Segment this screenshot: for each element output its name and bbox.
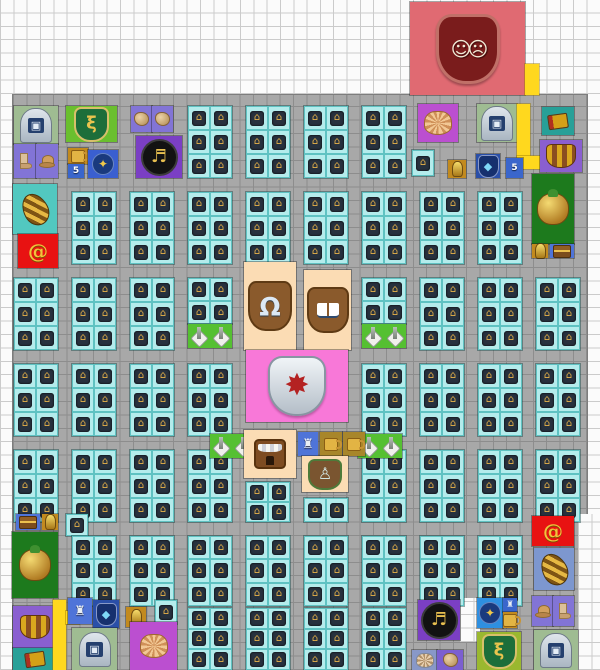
shrine-building[interactable]: ⌂ xyxy=(72,278,94,302)
shrine-building[interactable]: ⌂ xyxy=(268,502,290,522)
shrine-building[interactable]: ⌂ xyxy=(478,216,500,240)
shrine-building[interactable]: ⌂ xyxy=(442,412,464,436)
shrine-building[interactable]: ⌂ xyxy=(188,412,210,436)
shrine-building[interactable]: ⌂ xyxy=(478,450,500,474)
shrine-building[interactable]: ⌂ xyxy=(326,629,348,650)
portal-emblem-tile-br[interactable]: ▣ xyxy=(534,630,578,670)
shrine-building[interactable]: ⌂ xyxy=(268,608,290,629)
spiral-tile-tl[interactable]: @ xyxy=(18,234,58,268)
shrine-building[interactable]: ⌂ xyxy=(36,474,58,498)
shrine-building[interactable]: ⌂ xyxy=(152,364,174,388)
shrine-building[interactable]: ⌂ xyxy=(268,106,290,130)
shrine-building[interactable]: ⌂ xyxy=(152,278,174,302)
shrine-building[interactable]: ⌂ xyxy=(152,412,174,436)
shrine-building[interactable]: ⌂ xyxy=(246,240,268,264)
shrine-building[interactable]: ⌂ xyxy=(72,474,94,498)
obelisk-tile-c6[interactable] xyxy=(362,324,406,348)
shrine-building[interactable]: ⌂ xyxy=(326,192,348,216)
shell-tile-bl[interactable] xyxy=(130,622,177,670)
shrine-building[interactable]: ⌂ xyxy=(362,583,384,606)
shrine-building[interactable]: ⌂ xyxy=(246,154,268,178)
shrine-building[interactable]: ⌂ xyxy=(384,536,406,559)
shrine-building[interactable]: ⌂ xyxy=(384,474,406,498)
shrine-building[interactable]: ⌂ xyxy=(500,240,522,264)
chest-tile-tr[interactable] xyxy=(550,244,574,258)
shrine-building[interactable]: ⌂ xyxy=(362,649,384,670)
shrine-building[interactable]: ⌂ xyxy=(72,216,94,240)
shrine-building[interactable]: ⌂ xyxy=(188,130,210,154)
shrine-building[interactable]: ⌂ xyxy=(304,240,326,264)
portal-emblem-tile-tr[interactable]: ▣ xyxy=(477,104,517,142)
shrine-building[interactable]: ⌂ xyxy=(72,450,94,474)
shrine-building[interactable]: ⌂ xyxy=(384,192,406,216)
shrine-building[interactable]: ⌂ xyxy=(362,154,384,178)
shrine-building[interactable]: ⌂ xyxy=(362,559,384,582)
shrine-building[interactable]: ⌂ xyxy=(326,498,348,522)
shrine-building[interactable]: ⌂ xyxy=(130,278,152,302)
shrine-building[interactable]: ⌂ xyxy=(384,364,406,388)
shrine-building[interactable]: ⌂ xyxy=(304,130,326,154)
yellow-road-top[interactable] xyxy=(525,64,539,95)
shrine-building[interactable]: ⌂ xyxy=(210,498,232,522)
shrine-building[interactable]: ⌂ xyxy=(558,364,580,388)
shrine-building[interactable]: ⌂ xyxy=(442,240,464,264)
shrine-building[interactable]: ⌂ xyxy=(420,559,442,582)
shrine-building[interactable]: ⌂ xyxy=(442,474,464,498)
shrine-building[interactable]: ⌂ xyxy=(268,130,290,154)
shrine-building[interactable]: ⌂ xyxy=(268,216,290,240)
urn-tile-tr[interactable] xyxy=(532,174,574,244)
mug-tile-center-a[interactable] xyxy=(320,432,342,456)
shrine-building[interactable]: ⌂ xyxy=(188,278,210,301)
shrine-building[interactable]: ⌂ xyxy=(152,474,174,498)
shrine-building[interactable]: ⌂ xyxy=(94,240,116,264)
shrine-building[interactable]: ⌂ xyxy=(210,106,232,130)
shrine-building[interactable]: ⌂ xyxy=(500,536,522,559)
shrine-building[interactable]: ⌂ xyxy=(130,583,152,606)
shrine-building[interactable]: ⌂ xyxy=(478,302,500,326)
shrine-building[interactable]: ⌂ xyxy=(14,412,36,436)
guild-plaza[interactable]: ✸ xyxy=(246,350,348,422)
shrine-building[interactable]: ⌂ xyxy=(384,629,406,650)
shrine-building[interactable]: ⌂ xyxy=(188,498,210,522)
shrine-building[interactable]: ⌂ xyxy=(304,559,326,582)
shrine-building[interactable]: ⌂ xyxy=(188,536,210,559)
shrine-building[interactable]: ⌂ xyxy=(478,388,500,412)
shrine-building[interactable]: ⌂ xyxy=(268,583,290,606)
shrine-building[interactable]: ⌂ xyxy=(384,608,406,629)
statue-tile-bl[interactable]: ♜ xyxy=(68,598,92,624)
shrine-building[interactable]: ⌂ xyxy=(420,302,442,326)
shrine-building[interactable]: ⌂ xyxy=(14,388,36,412)
mug-tile-center-b[interactable] xyxy=(343,432,365,456)
shrine-building[interactable]: ⌂ xyxy=(558,388,580,412)
shrine-building[interactable]: ⌂ xyxy=(442,498,464,522)
shrine-building[interactable]: ⌂ xyxy=(500,326,522,350)
shell-tile-tr[interactable] xyxy=(418,104,458,142)
mug-tile-br[interactable] xyxy=(503,612,517,628)
shrine-building[interactable]: ⌂ xyxy=(558,326,580,350)
shrine-building[interactable]: ⌂ xyxy=(188,629,210,650)
shrine-building[interactable]: ⌂ xyxy=(326,649,348,670)
spiral-tile-br[interactable]: @ xyxy=(532,516,574,546)
shrine-building[interactable]: ⌂ xyxy=(246,502,268,522)
shrine-building[interactable]: ⌂ xyxy=(362,608,384,629)
shrine-building[interactable]: ⌂ xyxy=(362,388,384,412)
shrine-building[interactable]: ⌂ xyxy=(268,154,290,178)
shrine-building[interactable]: ⌂ xyxy=(536,364,558,388)
shrine-building[interactable]: ⌂ xyxy=(268,536,290,559)
trophy-plaza[interactable]: ♙ xyxy=(302,456,348,492)
shrine-building[interactable]: ⌂ xyxy=(210,364,232,388)
shrine-building[interactable]: ⌂ xyxy=(210,301,232,324)
shrine-building[interactable]: ⌂ xyxy=(130,216,152,240)
shrine-building[interactable]: ⌂ xyxy=(304,629,326,650)
basket-tile-bl[interactable] xyxy=(13,606,57,648)
shrine-building[interactable]: ⌂ xyxy=(412,150,434,176)
shrine-building[interactable]: ⌂ xyxy=(210,649,232,670)
lamp-tile-bl-a[interactable] xyxy=(42,514,58,530)
shrine-building[interactable]: ⌂ xyxy=(210,240,232,264)
shrine-building[interactable]: ⌂ xyxy=(94,302,116,326)
shrine-building[interactable]: ⌂ xyxy=(246,559,268,582)
shrine-building[interactable]: ⌂ xyxy=(246,649,268,670)
shrine-building[interactable]: ⌂ xyxy=(246,130,268,154)
shrine-building[interactable]: ⌂ xyxy=(384,130,406,154)
shrine-building[interactable]: ⌂ xyxy=(152,450,174,474)
shrine-building[interactable]: ⌂ xyxy=(72,412,94,436)
shrine-building[interactable]: ⌂ xyxy=(442,536,464,559)
shrine-building[interactable]: ⌂ xyxy=(268,649,290,670)
number-tile-tr[interactable]: 5 xyxy=(506,158,523,178)
shrine-building[interactable]: ⌂ xyxy=(442,216,464,240)
shrine-building[interactable]: ⌂ xyxy=(326,216,348,240)
shrine-building[interactable]: ⌂ xyxy=(536,474,558,498)
shrine-building[interactable]: ⌂ xyxy=(36,364,58,388)
shrine-building[interactable]: ⌂ xyxy=(210,583,232,606)
shrine-building[interactable]: ⌂ xyxy=(326,240,348,264)
shrine-building[interactable]: ⌂ xyxy=(384,412,406,436)
portal-emblem-tile-tl[interactable]: ▣ xyxy=(14,106,58,144)
shrine-building[interactable]: ⌂ xyxy=(420,412,442,436)
boot-tile-br[interactable] xyxy=(553,596,574,626)
shrine-building[interactable]: ⌂ xyxy=(558,450,580,474)
shrine-building[interactable]: ⌂ xyxy=(420,388,442,412)
shrine-building[interactable]: ⌂ xyxy=(420,474,442,498)
shrine-building[interactable]: ⌂ xyxy=(500,216,522,240)
glove-tile-b[interactable] xyxy=(152,106,173,132)
shrine-building[interactable]: ⌂ xyxy=(478,192,500,216)
shrine-building[interactable]: ⌂ xyxy=(384,154,406,178)
shrine-building[interactable]: ⌂ xyxy=(188,154,210,178)
shrine-building[interactable]: ⌂ xyxy=(94,412,116,436)
shrine-building[interactable]: ⌂ xyxy=(362,498,384,522)
shrine-building[interactable]: ⌂ xyxy=(478,278,500,302)
shrine-building[interactable]: ⌂ xyxy=(36,278,58,302)
shrine-building[interactable]: ⌂ xyxy=(130,192,152,216)
music-clef-tile-tl[interactable]: ♬ xyxy=(136,136,182,178)
basket-tile-tr[interactable] xyxy=(540,140,582,172)
shrine-building[interactable]: ⌂ xyxy=(420,498,442,522)
shrine-building[interactable]: ⌂ xyxy=(384,388,406,412)
shrine-building[interactable]: ⌂ xyxy=(442,326,464,350)
shrine-building[interactable]: ⌂ xyxy=(500,388,522,412)
shrine-building[interactable]: ⌂ xyxy=(130,326,152,350)
shrine-building[interactable]: ⌂ xyxy=(36,326,58,350)
shrine-building[interactable]: ⌂ xyxy=(246,216,268,240)
shrine-building[interactable]: ⌂ xyxy=(210,278,232,301)
shrine-building[interactable]: ⌂ xyxy=(420,216,442,240)
shrine-building[interactable]: ⌂ xyxy=(362,216,384,240)
shrine-building[interactable]: ⌂ xyxy=(94,559,116,582)
shrine-building[interactable]: ⌂ xyxy=(362,240,384,264)
shrine-building[interactable]: ⌂ xyxy=(188,388,210,412)
shrine-building[interactable]: ⌂ xyxy=(478,474,500,498)
shrine-building[interactable]: ⌂ xyxy=(442,450,464,474)
shrine-building[interactable]: ⌂ xyxy=(188,301,210,324)
shrine-building[interactable]: ⌂ xyxy=(362,629,384,650)
shrine-building[interactable]: ⌂ xyxy=(268,482,290,502)
shrine-building[interactable]: ⌂ xyxy=(94,364,116,388)
shrine-building[interactable]: ⌂ xyxy=(14,278,36,302)
shrine-building[interactable]: ⌂ xyxy=(384,240,406,264)
shrine-building[interactable]: ⌂ xyxy=(246,192,268,216)
shrine-building[interactable]: ⌂ xyxy=(152,216,174,240)
shrine-building[interactable]: ⌂ xyxy=(500,450,522,474)
shrine-building[interactable]: ⌂ xyxy=(130,240,152,264)
shrine-building[interactable]: ⌂ xyxy=(152,240,174,264)
droplet-crest-tile-tr[interactable]: ◆ xyxy=(476,154,500,178)
shrine-building[interactable]: ⌂ xyxy=(188,216,210,240)
shrine-building[interactable]: ⌂ xyxy=(210,130,232,154)
shrine-building[interactable]: ⌂ xyxy=(210,608,232,629)
shrine-building[interactable]: ⌂ xyxy=(478,412,500,436)
shrine-building[interactable]: ⌂ xyxy=(152,192,174,216)
lamp-tile-tr-b[interactable] xyxy=(532,244,548,258)
shrine-building[interactable]: ⌂ xyxy=(94,498,116,522)
shrine-building[interactable]: ⌂ xyxy=(210,216,232,240)
shrine-building[interactable]: ⌂ xyxy=(304,608,326,629)
shrine-building[interactable]: ⌂ xyxy=(36,450,58,474)
mug-tile-tl[interactable] xyxy=(68,148,88,164)
shrine-building[interactable]: ⌂ xyxy=(500,559,522,582)
shrine-building[interactable]: ⌂ xyxy=(130,302,152,326)
shrine-building[interactable]: ⌂ xyxy=(558,474,580,498)
glove-tile-a[interactable] xyxy=(131,106,152,132)
shrine-building[interactable]: ⌂ xyxy=(362,412,384,436)
book-plaza[interactable] xyxy=(304,270,351,350)
shrine-building[interactable]: ⌂ xyxy=(326,583,348,606)
shrine-building[interactable]: ⌂ xyxy=(130,388,152,412)
chest-tile-bl[interactable] xyxy=(16,514,40,530)
shrine-building[interactable]: ⌂ xyxy=(500,474,522,498)
shrine-building[interactable]: ⌂ xyxy=(246,536,268,559)
shrine-building[interactable]: ⌂ xyxy=(478,326,500,350)
banner-tile-br[interactable]: ♜ xyxy=(503,598,517,612)
portal-emblem-tile-bl[interactable]: ▣ xyxy=(72,628,117,670)
shrine-building[interactable]: ⌂ xyxy=(536,412,558,436)
shrine-building[interactable]: ⌂ xyxy=(268,192,290,216)
shrine-building[interactable]: ⌂ xyxy=(246,583,268,606)
shrine-building[interactable]: ⌂ xyxy=(210,154,232,178)
shrine-building[interactable]: ⌂ xyxy=(72,302,94,326)
yellow-road-bl-v[interactable] xyxy=(53,600,66,670)
shrine-building[interactable]: ⌂ xyxy=(72,364,94,388)
shrine-building[interactable]: ⌂ xyxy=(536,450,558,474)
shrine-building[interactable]: ⌂ xyxy=(246,608,268,629)
shrine-building[interactable]: ⌂ xyxy=(442,559,464,582)
shrine-building[interactable]: ⌂ xyxy=(188,192,210,216)
shrine-building[interactable]: ⌂ xyxy=(500,278,522,302)
yellow-road-tr-v[interactable] xyxy=(517,104,530,156)
theater-masks-plaza[interactable]: ☺☹ xyxy=(410,2,525,95)
shrine-building[interactable]: ⌂ xyxy=(152,302,174,326)
shrine-building[interactable]: ⌂ xyxy=(500,192,522,216)
shell-tile-br-small[interactable] xyxy=(412,650,437,670)
gem-shield-tile-tl[interactable]: ✦ xyxy=(88,150,118,178)
shrine-building[interactable]: ⌂ xyxy=(326,106,348,130)
shrine-building[interactable]: ⌂ xyxy=(188,240,210,264)
star-shield-tile-br[interactable]: ✦ xyxy=(477,598,503,628)
shrine-building[interactable]: ⌂ xyxy=(14,474,36,498)
shrine-building[interactable]: ⌂ xyxy=(94,536,116,559)
bell-plaza[interactable]: Ω xyxy=(244,262,296,350)
shrine-building[interactable]: ⌂ xyxy=(246,106,268,130)
shrine-building[interactable]: ⌂ xyxy=(500,412,522,436)
shrine-building[interactable]: ⌂ xyxy=(14,450,36,474)
hat-tile-br[interactable] xyxy=(532,596,553,626)
shrine-building[interactable]: ⌂ xyxy=(72,559,94,582)
shrine-building[interactable]: ⌂ xyxy=(188,649,210,670)
shrine-building[interactable]: ⌂ xyxy=(384,301,406,324)
statue-tile-center[interactable]: ♜ xyxy=(298,432,318,456)
shrine-building[interactable]: ⌂ xyxy=(420,364,442,388)
shrine-building[interactable]: ⌂ xyxy=(420,192,442,216)
shrine-building[interactable]: ⌂ xyxy=(442,364,464,388)
obelisk-tile-c3[interactable] xyxy=(188,324,232,348)
shrine-building[interactable]: ⌂ xyxy=(268,559,290,582)
snake-crest-tile-tl[interactable]: ξ xyxy=(66,106,117,142)
conch-tile-br[interactable] xyxy=(534,548,574,590)
shrine-building[interactable]: ⌂ xyxy=(94,192,116,216)
storefront-plaza[interactable] xyxy=(244,430,296,478)
shrine-building[interactable]: ⌂ xyxy=(304,649,326,670)
shrine-building[interactable]: ⌂ xyxy=(558,278,580,302)
shrine-building[interactable]: ⌂ xyxy=(500,302,522,326)
shrine-building[interactable]: ⌂ xyxy=(66,514,88,536)
shrine-building[interactable]: ⌂ xyxy=(152,559,174,582)
shrine-building[interactable]: ⌂ xyxy=(14,302,36,326)
shrine-building[interactable]: ⌂ xyxy=(442,278,464,302)
shrine-building[interactable]: ⌂ xyxy=(72,536,94,559)
shrine-building[interactable]: ⌂ xyxy=(188,474,210,498)
shrine-building[interactable]: ⌂ xyxy=(14,364,36,388)
shrine-building[interactable]: ⌂ xyxy=(326,536,348,559)
shrine-building[interactable]: ⌂ xyxy=(210,474,232,498)
shrine-building[interactable]: ⌂ xyxy=(188,583,210,606)
shrine-building[interactable]: ⌂ xyxy=(442,388,464,412)
shrine-building[interactable]: ⌂ xyxy=(362,278,384,301)
shrine-building[interactable]: ⌂ xyxy=(130,559,152,582)
shrine-building[interactable]: ⌂ xyxy=(384,649,406,670)
shrine-building[interactable]: ⌂ xyxy=(384,583,406,606)
shrine-building[interactable]: ⌂ xyxy=(442,302,464,326)
shrine-building[interactable]: ⌂ xyxy=(188,608,210,629)
shrine-building[interactable]: ⌂ xyxy=(72,326,94,350)
shrine-building[interactable]: ⌂ xyxy=(14,326,36,350)
shrine-building[interactable]: ⌂ xyxy=(130,450,152,474)
shrine-building[interactable]: ⌂ xyxy=(94,474,116,498)
boot-tile-tl[interactable] xyxy=(14,144,36,178)
snake-crest-tile-br[interactable]: ξ xyxy=(477,632,521,670)
shrine-building[interactable]: ⌂ xyxy=(362,301,384,324)
shrine-building[interactable]: ⌂ xyxy=(420,450,442,474)
shrine-building[interactable]: ⌂ xyxy=(384,278,406,301)
shrine-building[interactable]: ⌂ xyxy=(268,240,290,264)
shrine-building[interactable]: ⌂ xyxy=(94,388,116,412)
shrine-building[interactable]: ⌂ xyxy=(210,629,232,650)
shrine-building[interactable]: ⌂ xyxy=(304,536,326,559)
shrine-building[interactable]: ⌂ xyxy=(188,559,210,582)
lamp-tile-tr-a[interactable] xyxy=(448,160,466,178)
shrine-building[interactable]: ⌂ xyxy=(536,388,558,412)
shrine-building[interactable]: ⌂ xyxy=(72,240,94,264)
shrine-building[interactable]: ⌂ xyxy=(478,536,500,559)
moth-tile-br[interactable] xyxy=(437,650,463,670)
shrine-building[interactable]: ⌂ xyxy=(130,364,152,388)
shrine-building[interactable]: ⌂ xyxy=(420,240,442,264)
shrine-building[interactable]: ⌂ xyxy=(268,629,290,650)
shrine-building[interactable]: ⌂ xyxy=(36,302,58,326)
shrine-building[interactable]: ⌂ xyxy=(152,388,174,412)
shrine-building[interactable]: ⌂ xyxy=(558,302,580,326)
shrine-building[interactable]: ⌂ xyxy=(188,450,210,474)
shrine-building[interactable]: ⌂ xyxy=(246,482,268,502)
book-tile-bl[interactable] xyxy=(13,648,57,670)
book-tile-tr[interactable] xyxy=(542,107,574,135)
shrine-building[interactable]: ⌂ xyxy=(362,474,384,498)
shrine-building[interactable]: ⌂ xyxy=(536,278,558,302)
droplet-crest-tile-bl[interactable]: ◆ xyxy=(93,600,119,628)
shrine-building[interactable]: ⌂ xyxy=(478,498,500,522)
shrine-building[interactable]: ⌂ xyxy=(362,192,384,216)
shrine-building[interactable]: ⌂ xyxy=(152,536,174,559)
shrine-building[interactable]: ⌂ xyxy=(36,388,58,412)
shrine-building[interactable]: ⌂ xyxy=(152,326,174,350)
shrine-building[interactable]: ⌂ xyxy=(210,412,232,436)
shrine-building[interactable]: ⌂ xyxy=(210,388,232,412)
shrine-building[interactable]: ⌂ xyxy=(420,326,442,350)
shrine-building[interactable]: ⌂ xyxy=(500,498,522,522)
shrine-building[interactable]: ⌂ xyxy=(558,412,580,436)
shrine-building[interactable]: ⌂ xyxy=(94,278,116,302)
shrine-building[interactable]: ⌂ xyxy=(384,559,406,582)
shrine-building[interactable]: ⌂ xyxy=(36,412,58,436)
shrine-building[interactable]: ⌂ xyxy=(420,278,442,302)
shrine-building[interactable]: ⌂ xyxy=(362,536,384,559)
shrine-building[interactable]: ⌂ xyxy=(130,498,152,522)
shrine-building[interactable]: ⌂ xyxy=(94,326,116,350)
shrine-building[interactable]: ⌂ xyxy=(188,106,210,130)
shrine-building[interactable]: ⌂ xyxy=(210,536,232,559)
urn-tile-bl[interactable] xyxy=(12,532,58,598)
shrine-building[interactable]: ⌂ xyxy=(384,216,406,240)
shrine-building[interactable]: ⌂ xyxy=(442,192,464,216)
shrine-building[interactable]: ⌂ xyxy=(478,364,500,388)
shrine-building[interactable]: ⌂ xyxy=(130,536,152,559)
shrine-building[interactable]: ⌂ xyxy=(384,498,406,522)
number-tile-tl[interactable]: 5 xyxy=(68,164,84,178)
